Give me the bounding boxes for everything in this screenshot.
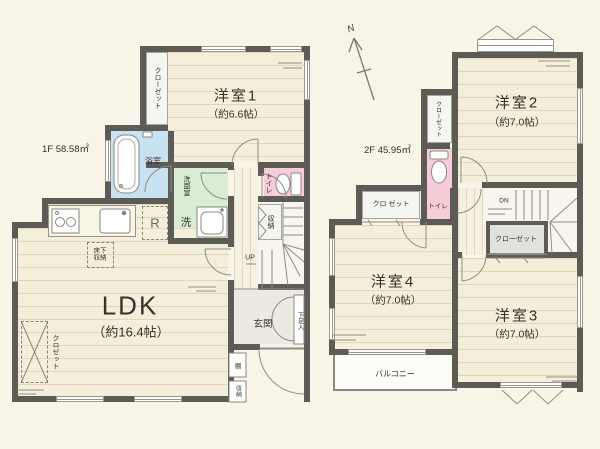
yoshitsu1-size-label: （約6.6帖） — [208, 107, 265, 122]
window — [201, 46, 246, 52]
wall — [356, 185, 427, 191]
wall — [228, 162, 234, 170]
yoshitsu3-size-label: （約7.0帖） — [489, 327, 546, 342]
yoshitsu1-label: 洋室1 — [214, 85, 258, 106]
window — [329, 238, 335, 276]
north-label: N — [346, 23, 356, 36]
wall — [168, 238, 234, 244]
balcony-label: バルコニー — [375, 369, 415, 380]
window — [477, 39, 554, 52]
washer-label: 洗 — [181, 215, 192, 230]
up-label: UP — [245, 255, 255, 262]
hall-storage-label: 収納 — [265, 215, 275, 229]
window — [304, 60, 310, 100]
fridge-label: R — [150, 216, 159, 231]
wall — [452, 252, 462, 258]
washroom-label: 洗面室 — [181, 176, 191, 197]
wall — [258, 196, 304, 202]
closet-1f-label: クローゼット — [152, 67, 162, 109]
yoshitsu4-label: 洋室4 — [371, 271, 415, 292]
ldk-label: LDK — [102, 291, 159, 322]
north-arrow — [349, 38, 374, 100]
wall — [452, 225, 458, 388]
shoe-storage-label: 下足入 — [296, 312, 305, 330]
wall — [228, 344, 260, 350]
wall — [140, 46, 146, 131]
window — [577, 88, 583, 144]
ldk-size-label: （約16.4帖） — [92, 322, 169, 341]
floor-plan: 1F 58.58㎡ 洋室1 （約6.6帖） LDK （約16.4帖） 浴室 洗面… — [0, 0, 600, 449]
toilet-1f-label: トイレ — [263, 173, 273, 194]
wall — [228, 280, 234, 402]
window — [348, 349, 426, 355]
toilet-2f-label: トイレ — [428, 200, 448, 210]
window — [105, 140, 111, 182]
shelf-label: 棚 — [235, 360, 242, 370]
dn-label: DN — [499, 198, 508, 205]
wall — [450, 188, 458, 219]
bath-label: 浴室 — [145, 156, 161, 167]
wall — [421, 143, 450, 149]
yoshitsu2-label: 洋室2 — [495, 92, 539, 113]
underfloor-storage-label: 床下収納 — [91, 248, 109, 263]
kitchen-counter — [48, 205, 136, 237]
wall — [452, 52, 458, 188]
closet-2f-hall-label: クロ ゼット — [373, 199, 410, 209]
wall — [168, 131, 174, 244]
window — [134, 396, 182, 402]
window — [12, 238, 18, 282]
wall — [482, 182, 583, 188]
wall — [258, 162, 310, 168]
hallway-1f — [234, 168, 258, 290]
window — [500, 382, 562, 388]
wall — [105, 198, 174, 204]
window — [56, 396, 104, 402]
closet-2f-west-label: クローゼット — [434, 101, 443, 135]
floor1-area-label: 1F 58.58㎡ — [42, 141, 89, 155]
hallway-2f — [458, 188, 484, 255]
genkan-label: 玄関 — [253, 316, 272, 330]
yoshitsu4-size-label: （約7.0帖） — [365, 293, 422, 308]
wall — [421, 89, 427, 225]
ldk-closet-box — [21, 321, 48, 383]
wall — [258, 284, 310, 290]
yoshitsu2-size-label: （約7.0帖） — [489, 115, 546, 130]
porch-storage-label: 収納 — [234, 385, 243, 397]
wall — [105, 125, 168, 131]
closet-2f-stairs-label: クローゼット — [495, 234, 537, 244]
wall — [423, 89, 458, 95]
wall — [42, 198, 111, 204]
floor2-area-label: 2F 45.95㎡ — [364, 142, 411, 156]
window — [270, 46, 302, 52]
window — [329, 308, 335, 340]
wall — [452, 52, 583, 58]
window — [577, 276, 583, 328]
yoshitsu3-label: 洋室3 — [495, 305, 539, 326]
ldk-closet-label: クロゼット — [50, 335, 60, 370]
wall — [12, 396, 234, 402]
